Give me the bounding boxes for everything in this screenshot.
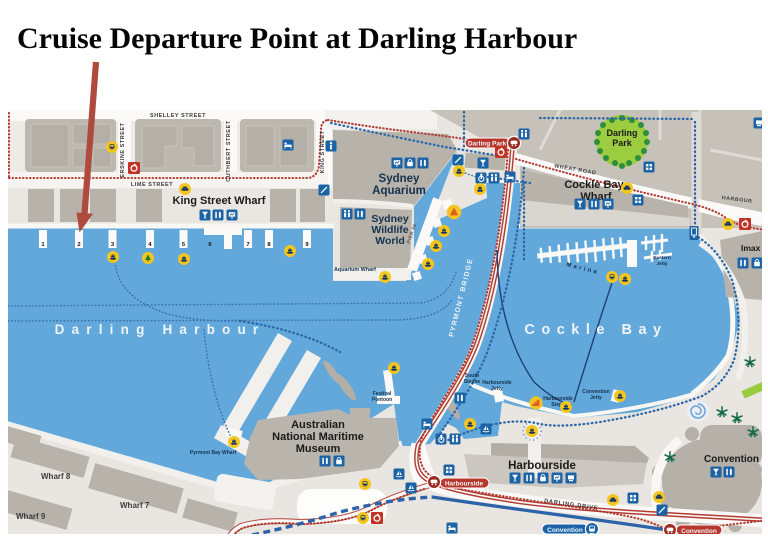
svg-text:Museum: Museum bbox=[296, 443, 341, 455]
svg-text:Harbourside: Harbourside bbox=[508, 460, 576, 472]
svg-text:Darling Harbour: Darling Harbour bbox=[55, 322, 266, 337]
svg-text:Aquarium: Aquarium bbox=[372, 185, 426, 197]
svg-text:2: 2 bbox=[77, 242, 80, 248]
svg-text:Wharf 7: Wharf 7 bbox=[120, 501, 150, 510]
svg-text:Cruise Departure Point at Darl: Cruise Departure Point at Darling Harbou… bbox=[17, 22, 577, 55]
svg-text:Sydney: Sydney bbox=[379, 173, 421, 185]
svg-text:Jetty: Jetty bbox=[590, 395, 602, 401]
svg-text:Darling: Darling bbox=[606, 128, 637, 138]
svg-text:Cockle Bay: Cockle Bay bbox=[524, 322, 667, 338]
svg-text:World: World bbox=[375, 235, 405, 247]
svg-text:National Maritime: National Maritime bbox=[272, 431, 364, 443]
svg-text:Cockle Bay: Cockle Bay bbox=[564, 179, 624, 191]
svg-text:Australian: Australian bbox=[291, 419, 345, 431]
svg-text:KING STREET: KING STREET bbox=[320, 130, 326, 173]
svg-text:Eastern: Eastern bbox=[653, 255, 671, 261]
svg-text:Convention: Convention bbox=[547, 527, 583, 534]
svg-text:SHELLEY STREET: SHELLEY STREET bbox=[150, 113, 206, 119]
svg-text:Wharf 9: Wharf 9 bbox=[16, 512, 46, 521]
svg-text:Imax: Imax bbox=[741, 243, 761, 253]
svg-text:Steyne: Steyne bbox=[464, 379, 481, 385]
svg-text:ERSKINE STREET: ERSKINE STREET bbox=[120, 122, 126, 177]
svg-text:Jetty: Jetty bbox=[656, 261, 668, 267]
svg-text:Harbourside: Harbourside bbox=[445, 481, 484, 488]
svg-text:Pyrmont Bay Wharf: Pyrmont Bay Wharf bbox=[190, 450, 237, 456]
svg-text:Wharf 8: Wharf 8 bbox=[41, 472, 71, 481]
svg-text:Convention: Convention bbox=[681, 528, 717, 535]
svg-text:Convention C: Convention C bbox=[704, 454, 768, 465]
svg-text:7: 7 bbox=[246, 242, 249, 248]
svg-text:Pontoon: Pontoon bbox=[372, 397, 392, 403]
svg-text:King Street Wharf: King Street Wharf bbox=[173, 195, 266, 207]
svg-text:LIME STREET: LIME STREET bbox=[131, 182, 173, 188]
svg-text:Jetty: Jetty bbox=[491, 386, 503, 392]
svg-text:CUTHBERT STREET: CUTHBERT STREET bbox=[226, 120, 232, 182]
svg-text:Park: Park bbox=[612, 138, 633, 148]
svg-text:Aquarium Wharf: Aquarium Wharf bbox=[334, 267, 376, 273]
